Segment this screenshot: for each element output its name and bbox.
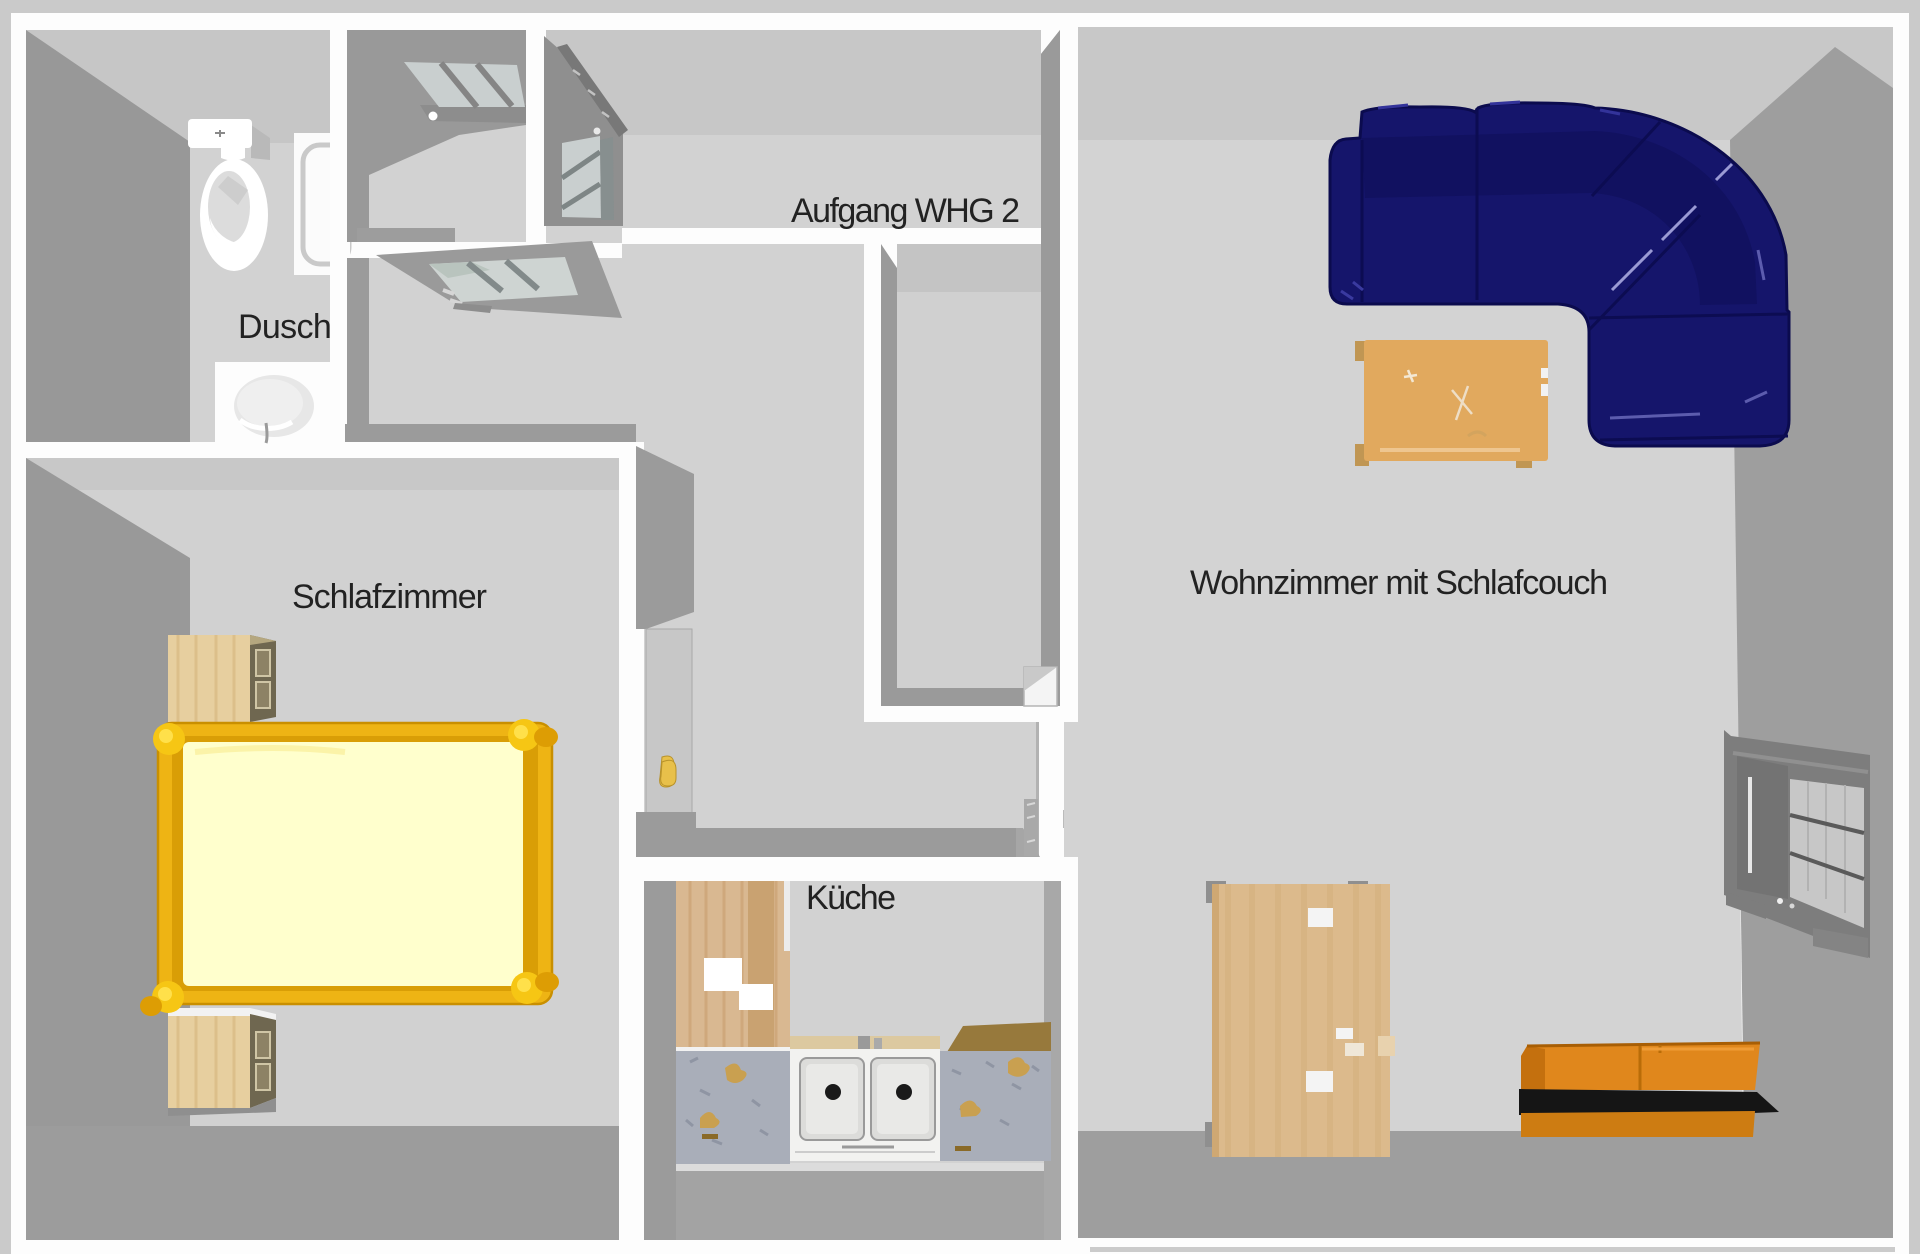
svg-text:Schlafzimmer: Schlafzimmer xyxy=(292,578,487,616)
svg-text:Aufgang WHG 2: Aufgang WHG 2 xyxy=(791,192,1020,230)
svg-text:Wohnzimmer mit Schlafcouch: Wohnzimmer mit Schlafcouch xyxy=(1190,564,1608,602)
svg-text:Küche: Küche xyxy=(806,879,896,917)
